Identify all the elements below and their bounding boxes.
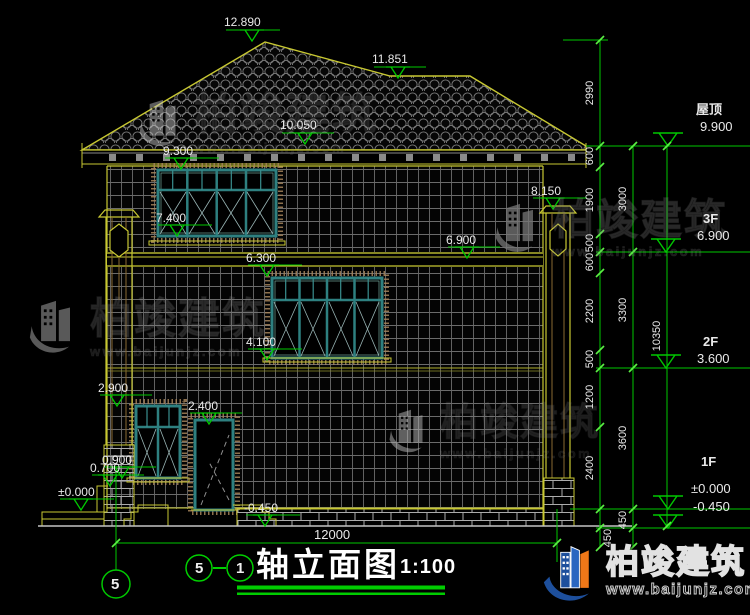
elev-pillar-cap: 8.150 (531, 185, 561, 197)
elev-f3-window-top: 9.300 (163, 145, 193, 157)
elev-ground: -0.450 (244, 502, 278, 514)
drawing-title: 轴立面图 (256, 548, 400, 581)
elev-f2-window-sill: 4.100 (246, 336, 276, 348)
story-2f-elev: 3.600 (697, 352, 730, 365)
story-3f-name: 3F (703, 212, 718, 225)
brand-logo: 柏竣建筑 www.baijunjz.com (542, 538, 750, 604)
story-3f-elev: 6.900 (697, 229, 730, 242)
brand-logo-text: 柏竣建筑 (606, 544, 750, 580)
dim-label: 3300 (616, 282, 630, 338)
elev-porch-rail: 0.700 (90, 462, 120, 474)
plinth (237, 509, 543, 526)
elevation-drawing-sheet: 柏竣建筑 www.baijunjz.com 柏竣建筑 www.baijunjz.… (0, 0, 750, 615)
window-3f (149, 166, 285, 246)
dim-label-overall-height: 10350 (650, 308, 664, 364)
dim-label: 1200 (583, 369, 597, 425)
elev-f1-window-top: 2.900 (98, 382, 128, 394)
floor-band-3f (107, 252, 543, 267)
pillar-right (540, 206, 576, 526)
elev-ridge: 12.890 (224, 16, 261, 28)
axis-bubble-number: 5 (111, 577, 119, 592)
story-2f-name: 2F (703, 335, 718, 348)
entry-door (191, 416, 238, 513)
brand-logo-icon (542, 538, 600, 604)
window-1f (127, 402, 189, 483)
cad-linework (0, 0, 750, 615)
story-roof-name: 屋顶 (696, 103, 722, 116)
dim-label: 2990 (583, 65, 597, 121)
title-axis-from: 5 (195, 561, 203, 576)
title-axis-to: 1 (236, 561, 244, 576)
story-ground-elev: -0.450 (693, 500, 730, 513)
drawing-scale: 1:100 (400, 557, 456, 577)
dim-label: 2400 (583, 440, 597, 496)
elev-ridge2: 11.851 (372, 53, 408, 65)
elev-f1-floor: ±0.000 (58, 486, 95, 498)
dim-label: 3600 (616, 410, 630, 466)
story-roof-elev: 9.900 (700, 120, 733, 133)
elev-f3-window-sill: 7.400 (156, 212, 186, 224)
roof (82, 42, 586, 150)
elev-door-top: 2.400 (188, 400, 218, 412)
story-1f-elev: ±0.000 (691, 482, 731, 495)
elev-f3-floor: 6.900 (446, 234, 476, 246)
story-1f-name: 1F (701, 455, 716, 468)
dim-label-overall-width: 12000 (314, 528, 350, 541)
elev-roof-slope: 10.050 (280, 119, 317, 131)
dim-label: 600 (583, 234, 597, 290)
elev-f2-window-top: 6.300 (246, 252, 276, 264)
dim-label: 3000 (616, 171, 630, 227)
brand-logo-url: www.baijunjz.com (606, 581, 750, 598)
